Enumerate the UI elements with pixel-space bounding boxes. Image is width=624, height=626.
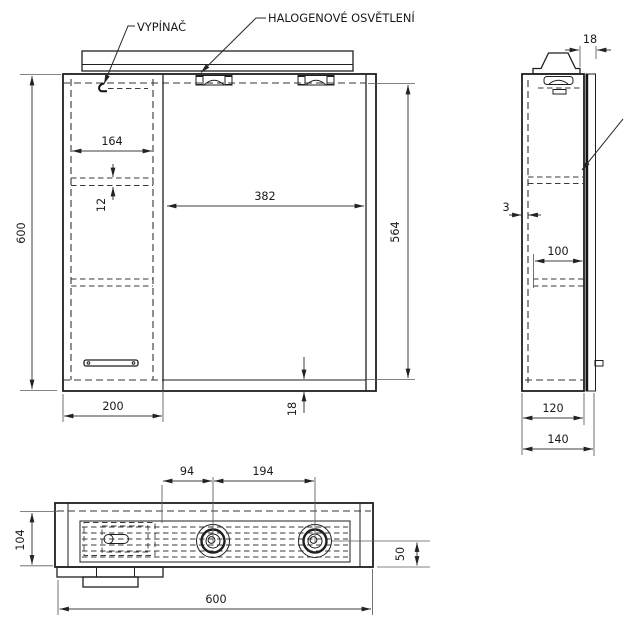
dim-front-bottom-panel: 18: [286, 402, 299, 416]
dim-side-top-panel: 18: [583, 33, 597, 46]
dim-side-shelf-depth: 100: [547, 245, 568, 258]
side-body-outline: [522, 74, 596, 391]
side-dimensions: 18 3 100 120 140: [502, 33, 623, 456]
dim-side-total-depth: 140: [547, 433, 568, 446]
dim-side-back-clearance: 3: [502, 201, 509, 214]
shelf-hidden-lines: [71, 178, 153, 286]
dim-front-total-height: 600: [15, 222, 28, 243]
dim-front-cabinet-width: 200: [102, 400, 123, 413]
plan-dimensions: 94 194 104 50 600: [14, 465, 430, 615]
dim-plan-lamp-spacing: 194: [252, 465, 273, 478]
dim-front-mirror-width: 382: [254, 190, 275, 203]
callout-labels: VYPÍNAČ HALOGENOVÉ OSVĚTLENÍ: [104, 10, 415, 84]
front-view: 600 164 12 382 564 200 18: [15, 10, 415, 422]
label-switch: VYPÍNAČ: [137, 19, 186, 34]
switch-icon: [99, 84, 148, 92]
plan-switch-icon: [104, 535, 129, 544]
front-dimensions: 600 164 12 382 564 200 18: [15, 75, 415, 423]
light-canopy: [82, 51, 353, 71]
dim-plan-lamp-offset: 94: [180, 465, 194, 478]
dim-front-mirror-height: 564: [389, 221, 402, 242]
side-view: 18 3 100 120 140: [502, 33, 623, 456]
side-shelf-hidden-lines: [528, 177, 584, 286]
plan-front-ledge: [57, 567, 163, 587]
cabinet-outline: [63, 74, 376, 391]
dim-front-shelf-width: 164: [101, 135, 122, 148]
dim-front-shelf-thickness: 12: [95, 198, 108, 212]
label-halogen-light: HALOGENOVÉ OSVĚTLENÍ: [268, 10, 415, 25]
plan-view: 94 194 104 50 600: [14, 465, 430, 615]
technical-drawing-sheet: 600 164 12 382 564 200 18: [0, 0, 624, 626]
mirror-clip: [595, 361, 603, 367]
door-handle: [84, 360, 138, 366]
halogen-lamp-front-icon: [298, 76, 334, 86]
halogen-lamp-front-icon: [196, 76, 232, 86]
dim-plan-body-depth: 104: [14, 529, 27, 550]
crown-light-icon: [533, 53, 580, 94]
door-hidden-lines: [71, 79, 153, 380]
dim-side-body-depth: 120: [542, 402, 563, 415]
mirror-cabinet-drawing: 600 164 12 382 564 200 18: [0, 0, 624, 626]
dim-plan-lamp-inset: 50: [394, 547, 407, 561]
dim-plan-total-width: 600: [205, 593, 226, 606]
